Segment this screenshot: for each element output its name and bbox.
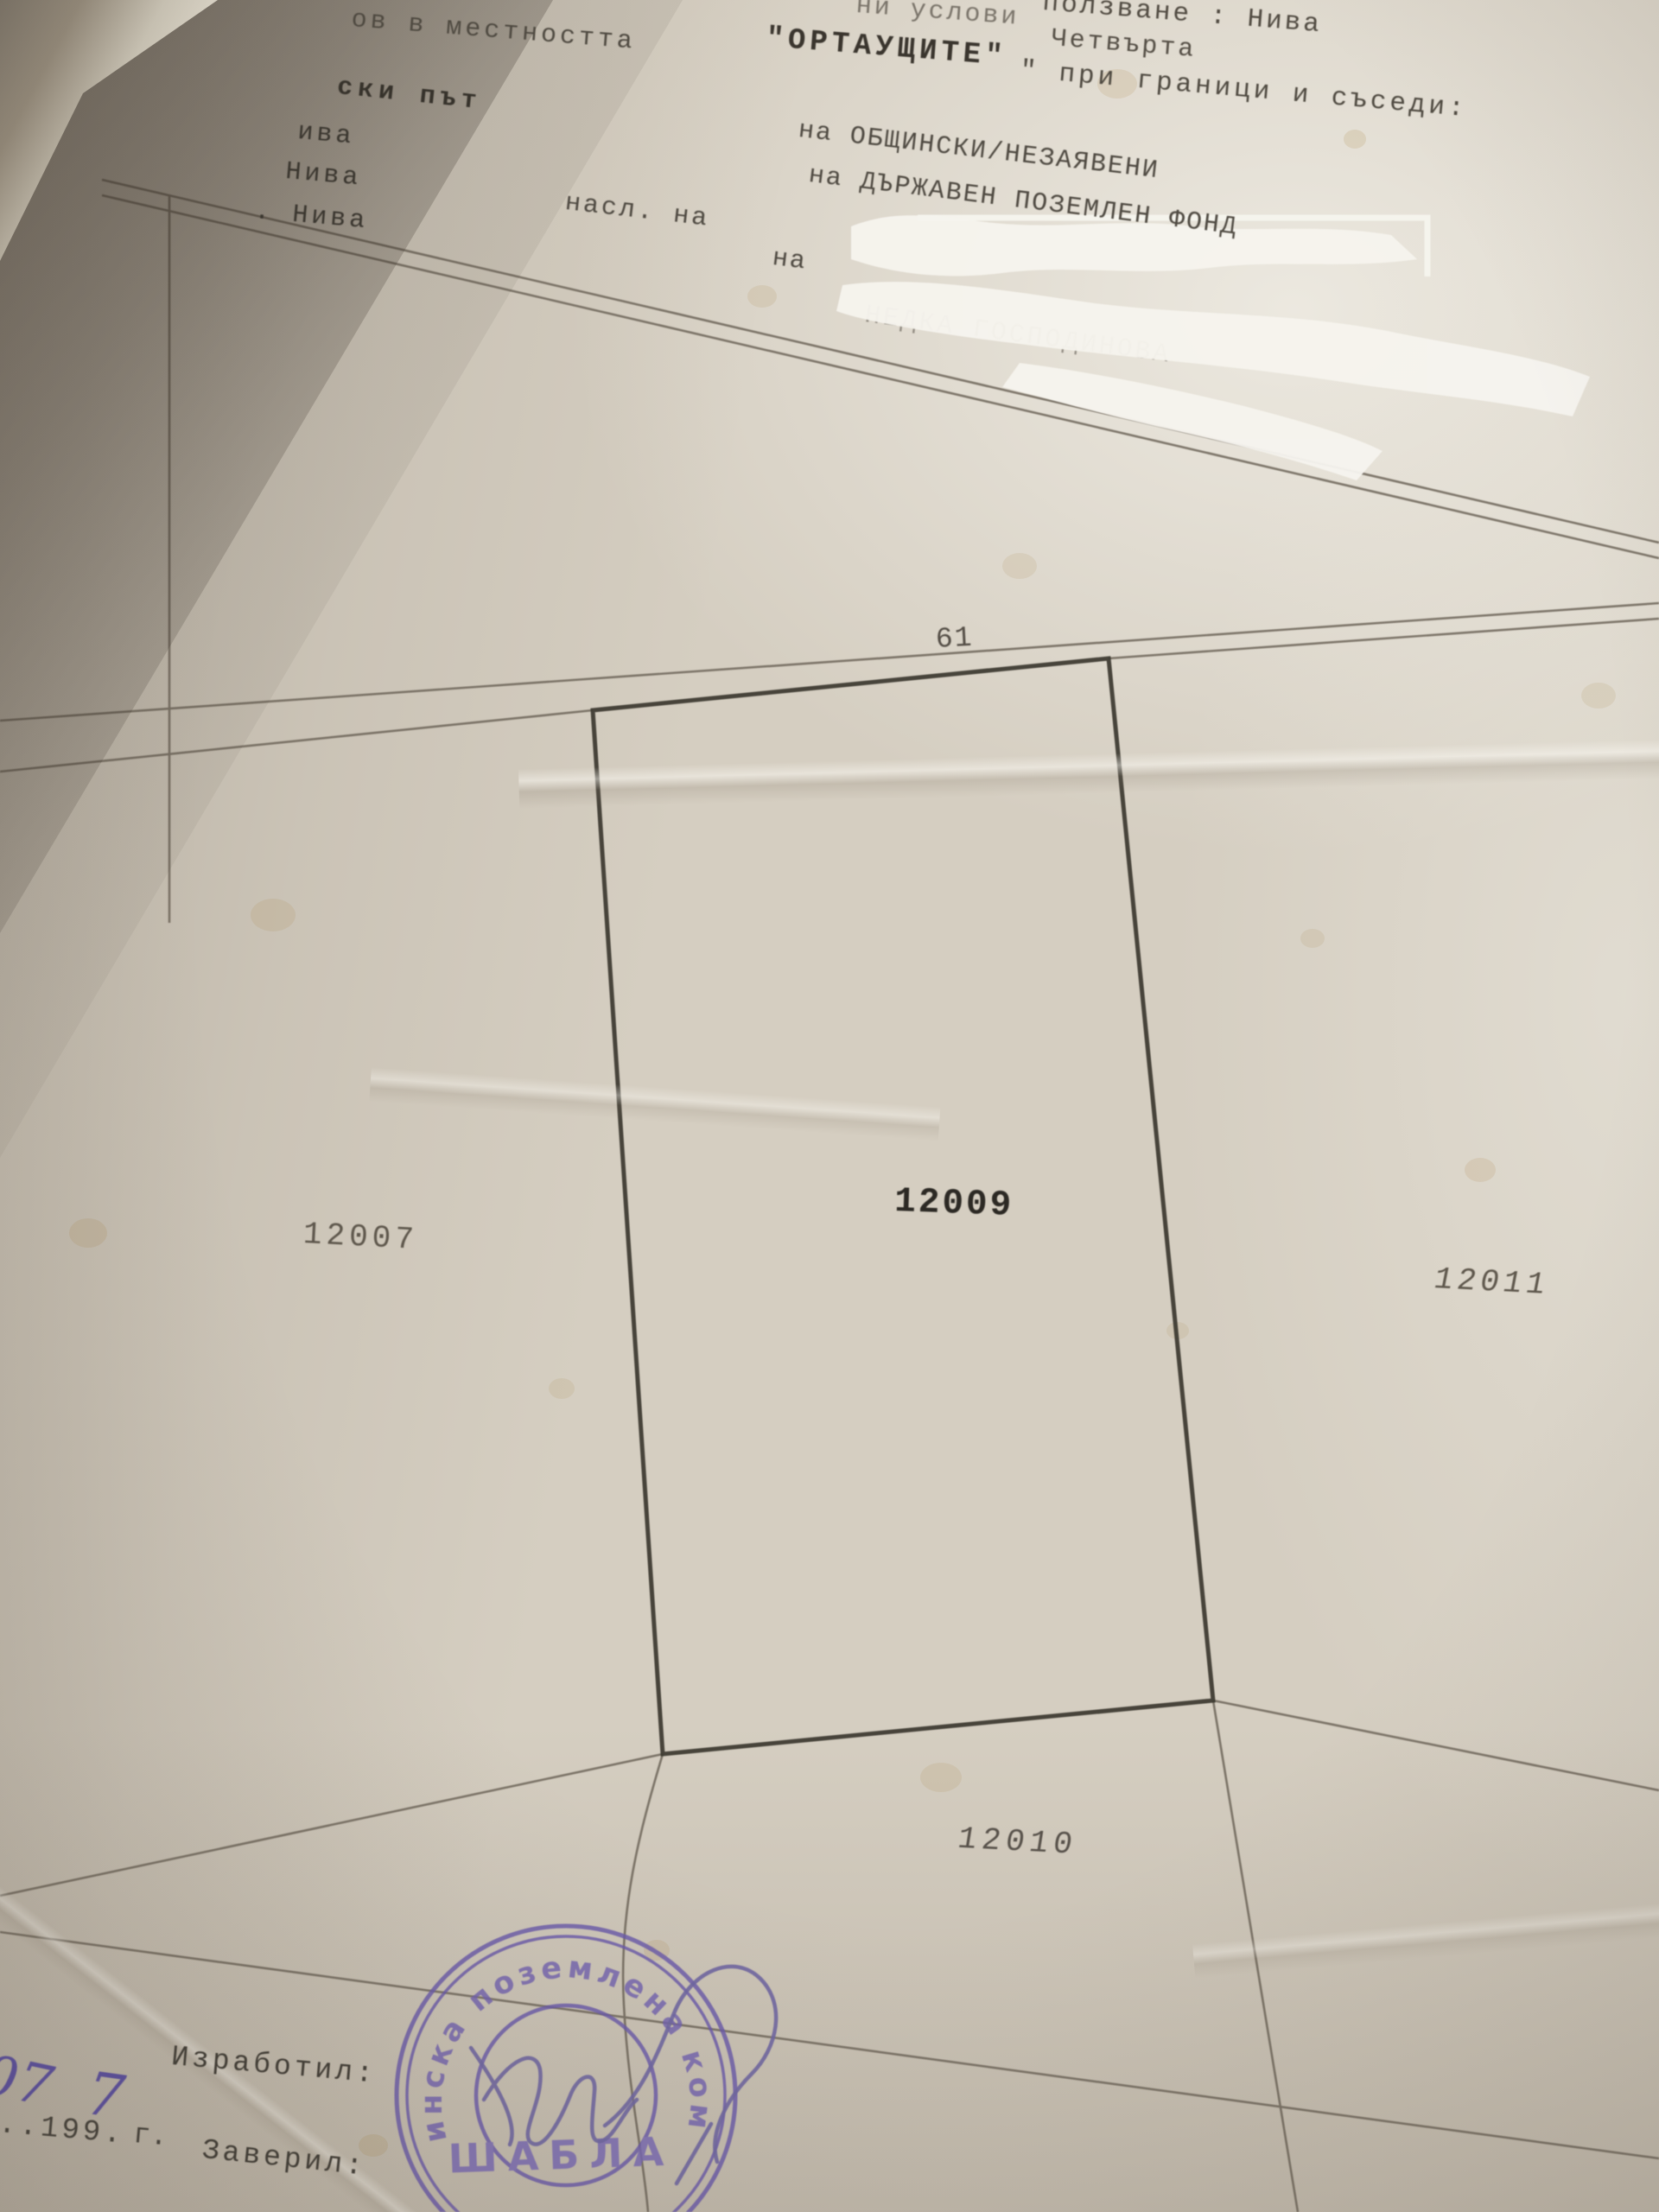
stamp-arc-text: общинска поземлена комисия [0, 0, 718, 2145]
document-photo: НЕДКА ГОСПОДИНОВА ни услови ползване : Н… [0, 0, 1659, 2212]
signature-slash [677, 2124, 711, 2183]
stamp-and-signature: общинска поземлена комисия ШАБЛА [0, 0, 1659, 2212]
svg-text:общинска поземлена комисия: общинска поземлена комисия [0, 0, 718, 2145]
round-stamp: общинска поземлена комисия ШАБЛА [0, 0, 735, 2212]
stamp-center-text: ШАБЛА [448, 2127, 675, 2182]
